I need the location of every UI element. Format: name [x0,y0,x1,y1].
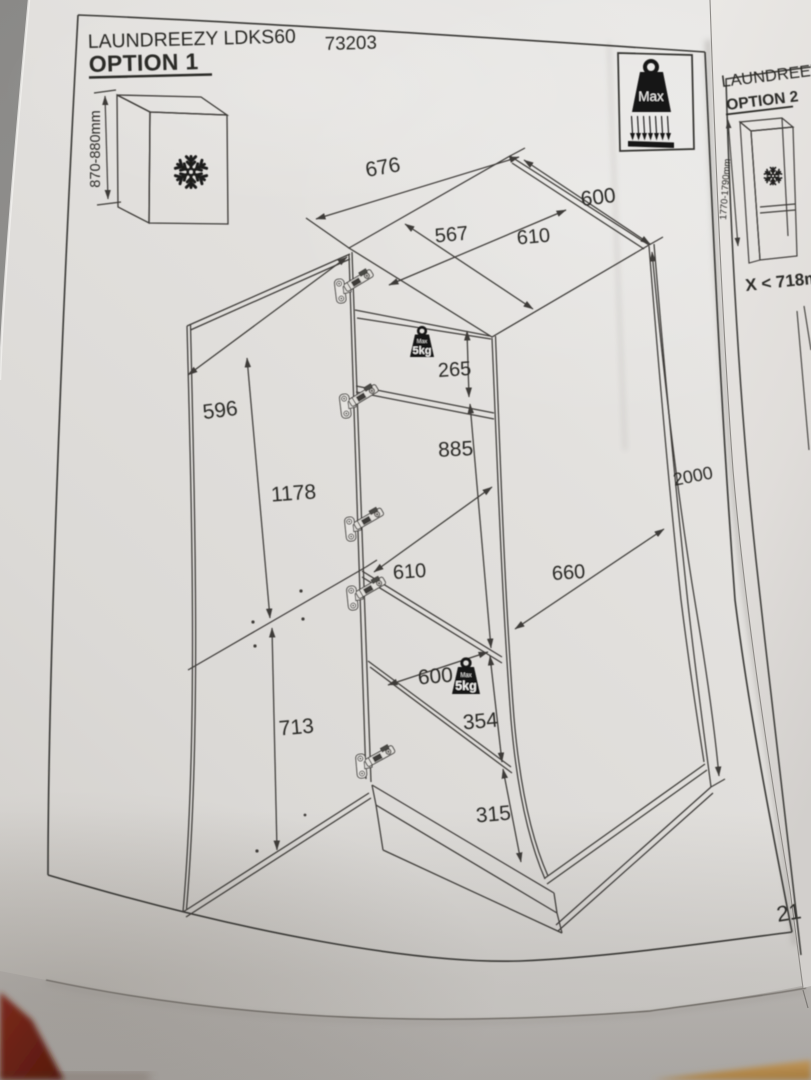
svg-text:600: 600 [417,664,454,690]
svg-text:Max: Max [638,89,664,104]
svg-text:600: 600 [579,184,617,211]
svg-text:354: 354 [462,709,499,735]
svg-text:315: 315 [475,802,512,828]
svg-text:73203: 73203 [325,33,378,55]
svg-text:OPTION 1: OPTION 1 [88,48,198,77]
svg-text:1178: 1178 [270,480,317,506]
svg-text:610: 610 [516,225,551,250]
svg-text:567: 567 [434,223,469,248]
svg-text:21: 21 [775,898,803,927]
svg-text:5kg: 5kg [455,679,477,693]
svg-text:870-880mm: 870-880mm [88,110,104,187]
svg-text:660: 660 [551,561,586,585]
svg-text:5kg: 5kg [413,345,432,357]
svg-text:885: 885 [438,437,474,462]
svg-text:265: 265 [437,358,472,382]
svg-text:713: 713 [278,715,315,741]
svg-text:610: 610 [392,560,427,584]
svg-text:596: 596 [201,397,239,424]
